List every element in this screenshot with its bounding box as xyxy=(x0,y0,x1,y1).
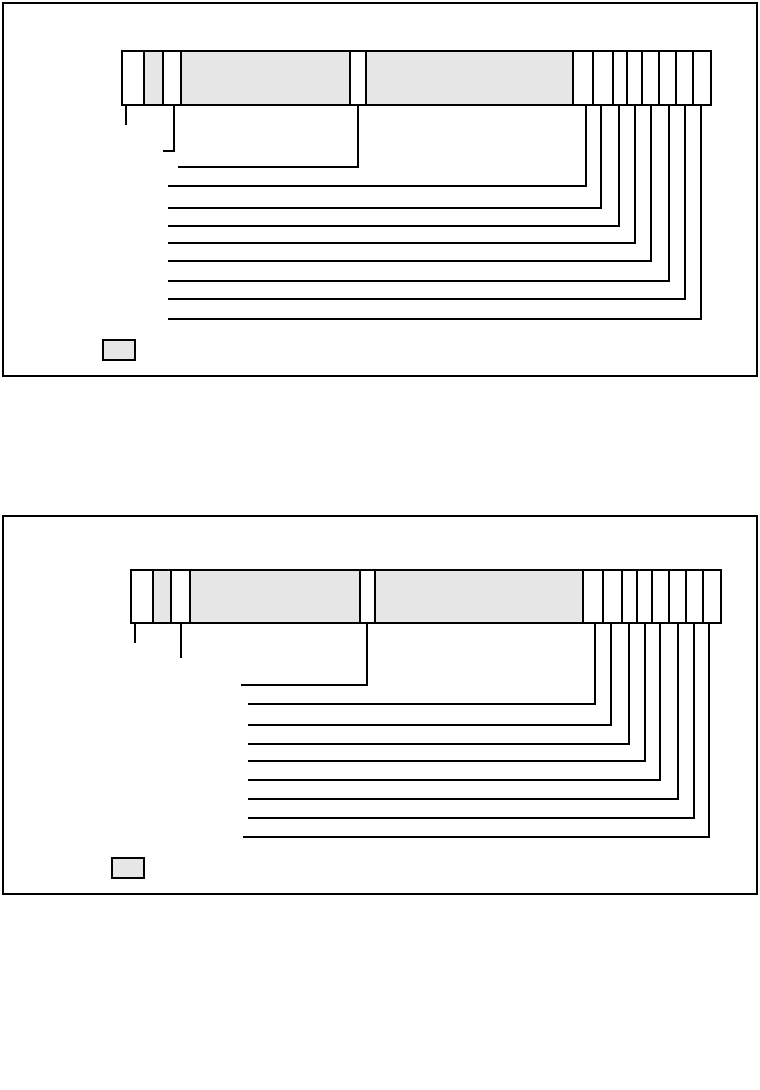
leader-drop-line xyxy=(610,622,612,726)
leader-horizontal-line xyxy=(248,779,661,781)
leader-horizontal-line xyxy=(248,760,646,762)
leader-horizontal-line xyxy=(241,684,368,686)
leader-drop-line xyxy=(659,622,661,781)
leader-horizontal-line xyxy=(248,817,695,819)
leader-horizontal-line xyxy=(248,703,596,705)
leader-drop-line xyxy=(180,622,182,658)
leader-drop-line xyxy=(366,622,368,686)
leader-horizontal-line xyxy=(248,798,679,800)
type-code-diagram-bottom xyxy=(0,0,760,1090)
leader-drop-line xyxy=(693,622,695,819)
leader-horizontal-line xyxy=(243,836,710,838)
page xyxy=(0,0,760,1090)
legend-swatch xyxy=(111,857,145,879)
leader-drop-line xyxy=(644,622,646,762)
leader-horizontal-line xyxy=(248,724,612,726)
leader-drop-line xyxy=(594,622,596,705)
leader-drop-line xyxy=(628,622,630,745)
leader-horizontal-line xyxy=(248,743,630,745)
bar-outline xyxy=(130,569,722,624)
leader-drop-line xyxy=(708,622,710,838)
leader-drop-line xyxy=(677,622,679,800)
leader-drop-line xyxy=(134,622,136,643)
